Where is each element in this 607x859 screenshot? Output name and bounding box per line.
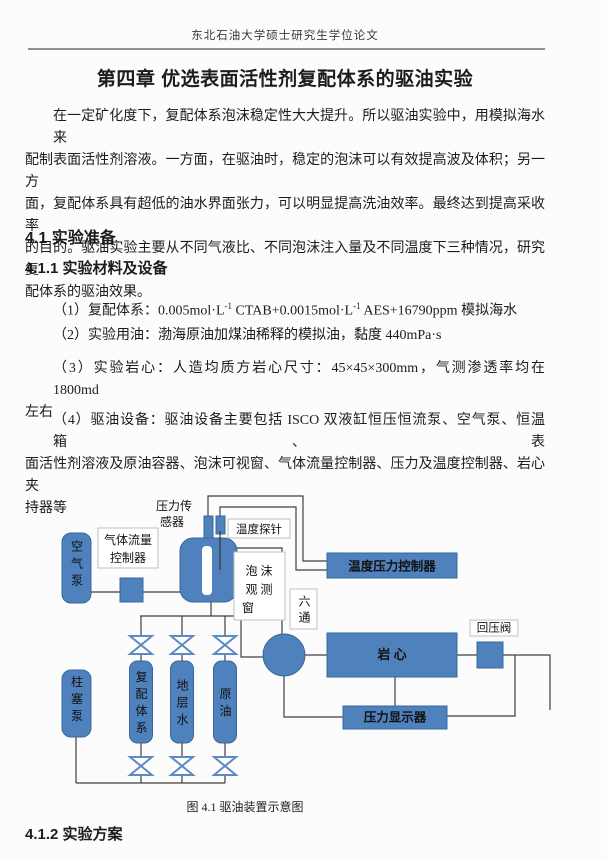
page-header: 东北石油大学硕士研究生学位论文 <box>25 27 545 43</box>
flooding-apparatus-diagram: 空气泵 气体流量 控制器 压力传 感器 温度探针 泡 沫 观 测 窗 温度压力控… <box>0 478 607 795</box>
chapter-title: 第四章 优选表面活性剂复配体系的驱油实验 <box>25 64 545 91</box>
valve-icon <box>214 636 236 654</box>
gas-flow-controller-label: 气体流量 <box>104 532 152 547</box>
section-heading-4-1-2: 4.1.2 实验方案 <box>25 823 123 844</box>
item4-line: （4）驱油设备：驱油设备主要包括 ISCO 双液缸恒压恒流泵、空气泵、恒温箱、表 <box>25 410 545 454</box>
plunger-pump-label: 柱塞泵 <box>70 674 84 726</box>
foam-window-label: 窗 <box>242 601 254 615</box>
cell-port-left <box>204 516 213 540</box>
six-way-label: 六通 <box>297 595 311 627</box>
gas-flow-controller-label: 控制器 <box>110 551 146 565</box>
valve-icon <box>214 757 236 775</box>
pressure-sensor-label: 压力传 <box>156 498 192 513</box>
item2-text: （2）实验用油：渤海原油加煤油稀释的模拟油，黏度 440mPa·s <box>25 325 545 347</box>
temp-pressure-controller-label: 温度压力控制器 <box>348 559 436 574</box>
intro-line: 配制表面活性剂溶液。一方面，在驱油时，稳定的泡沫可以有效提高波及体积；另一方 <box>25 150 545 194</box>
list-item-2: （2）实验用油：渤海原油加煤油稀释的模拟油，黏度 440mPa·s <box>25 325 545 347</box>
section-heading-4-1-1: 4.1.1 实验材料及设备 <box>25 257 168 278</box>
core-label: 岩 心 <box>376 647 406 662</box>
cell-sight-glass <box>202 546 212 595</box>
item1-superscript: -1 <box>225 301 233 311</box>
valve-icon <box>130 757 152 775</box>
temp-probe-label: 温度探针 <box>236 522 282 536</box>
item1-text: AES+16790ppm 模拟海水 <box>361 304 517 319</box>
section-heading-4-1: 4.1 实验准备 <box>25 224 116 248</box>
thesis-page: 东北石油大学硕士研究生学位论文 第四章 优选表面活性剂复配体系的驱油实验 在一定… <box>0 0 607 859</box>
intro-line: 在一定矿化度下，复配体系泡沫稳定性大大提升。所以驱油实验中，用模拟海水来 <box>25 106 545 150</box>
tank-formation-water-label: 地层水 <box>175 679 189 730</box>
tank-compound-label: 复配体系 <box>134 670 148 738</box>
gas-flow-controller-shape <box>120 578 143 602</box>
valve-icon <box>130 636 152 654</box>
tank-crude-oil-label: 原油 <box>218 688 232 722</box>
pressure-display-label: 压力显示器 <box>364 710 427 725</box>
air-pump-label: 空气泵 <box>70 540 84 591</box>
valve-icon <box>171 636 193 654</box>
header-rule <box>28 48 545 50</box>
item3-line: （3）实验岩心：人造均质方岩心尺寸：45×45×300mm，气测渗透率均在 18… <box>25 358 545 402</box>
back-pressure-valve-shape <box>477 642 503 668</box>
item1-superscript: -1 <box>353 301 361 311</box>
item1-text: （1）复配体系：0.005mol·L <box>53 304 225 319</box>
valve-icon <box>171 757 193 775</box>
item1-text: CTAB+0.0015mol·L <box>232 304 353 319</box>
figure-caption: 图 4.1 驱油装置示意图 <box>0 798 490 815</box>
six-way-valve-shape <box>263 634 305 676</box>
list-item-1: （1）复配体系：0.005mol·L-1 CTAB+0.0015mol·L-1 … <box>25 295 545 323</box>
pressure-sensor-label: 感器 <box>160 514 184 529</box>
foam-window-label: 观 测 <box>245 583 272 597</box>
back-pressure-valve-label: 回压阀 <box>477 621 512 635</box>
foam-window-label: 泡 沫 <box>245 564 272 578</box>
